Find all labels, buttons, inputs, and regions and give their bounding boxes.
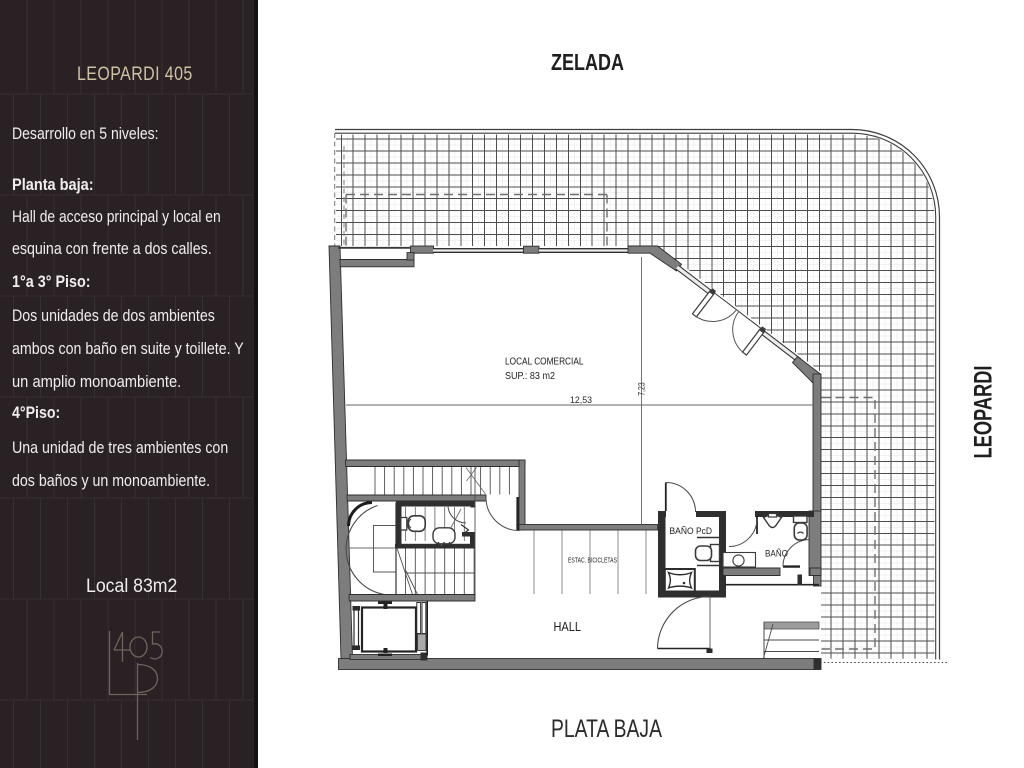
svg-text:ZELADA: ZELADA [551,49,624,75]
svg-text:SUP.: 83 m2: SUP.: 83 m2 [505,371,555,382]
svg-text:LEOPARDI: LEOPARDI [970,366,998,459]
svg-text:BAÑO: BAÑO [765,549,788,560]
svg-text:7,23: 7,23 [637,382,647,396]
svg-text:LOCAL COMERCIAL: LOCAL COMERCIAL [505,356,584,368]
svg-text:PLATA BAJA: PLATA BAJA [551,715,662,743]
svg-text:12,53: 12,53 [570,395,592,406]
svg-text:ESTAC. BICICLETAS: ESTAC. BICICLETAS [568,556,617,565]
svg-text:BAÑO PcD: BAÑO PcD [670,526,713,537]
svg-text:HALL: HALL [554,619,582,634]
